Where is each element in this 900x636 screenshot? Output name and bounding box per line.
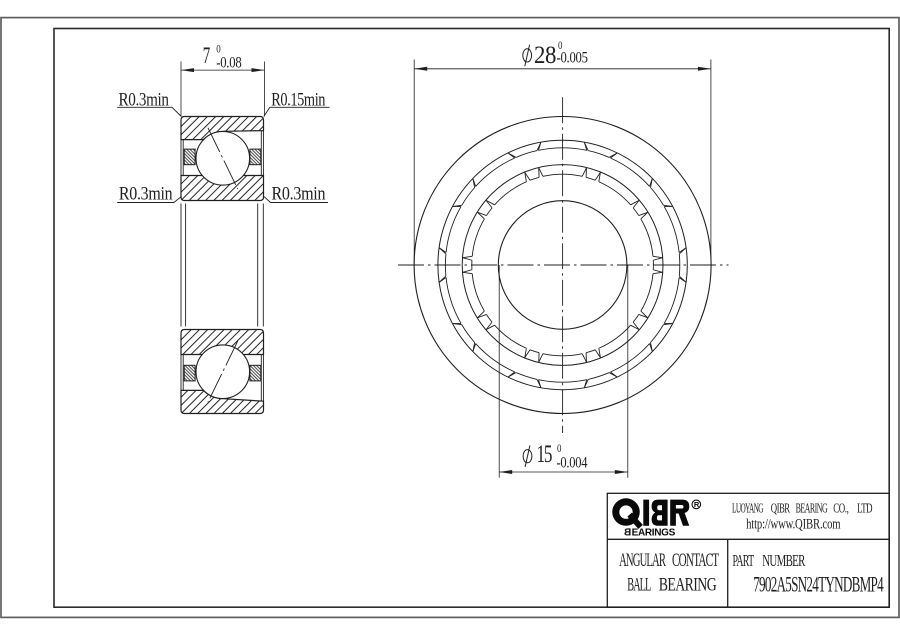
svg-text:-0.004: -0.004 [557,454,588,472]
svg-text:ANGULAR: ANGULAR [619,550,666,571]
svg-text:BEARING: BEARING [659,573,717,595]
svg-text:CO.,: CO., [833,501,849,516]
svg-text:BALL: BALL [627,574,651,595]
svg-text:R0.3min: R0.3min [272,182,326,204]
svg-text:R0.3min: R0.3min [119,182,173,204]
svg-text:CONTACT: CONTACT [672,550,719,571]
svg-text:B: B [624,527,631,538]
svg-text:-0.08: -0.08 [216,54,242,72]
svg-text:R0.15min: R0.15min [271,89,326,110]
svg-text:28: 28 [534,41,557,69]
svg-text:R0.3min: R0.3min [119,89,170,110]
svg-text:LTD: LTD [857,501,873,516]
svg-text:7: 7 [203,44,211,69]
svg-text:http://www.QIBR.com: http://www.QIBR.com [746,516,841,532]
svg-text:R: R [694,500,700,509]
svg-text:7902A5SN24TYNDBMP4: 7902A5SN24TYNDBMP4 [753,572,884,596]
svg-text:-0.005: -0.005 [557,49,589,67]
svg-text:BEARING: BEARING [796,501,828,516]
svg-text:PART: PART [733,551,755,569]
svg-text:QIBR: QIBR [771,502,791,516]
svg-text:15: 15 [537,440,553,468]
svg-text:EARINGS: EARINGS [632,527,676,538]
svg-text:NUMBER: NUMBER [762,552,806,571]
svg-text:LUOYANG: LUOYANG [732,501,764,516]
